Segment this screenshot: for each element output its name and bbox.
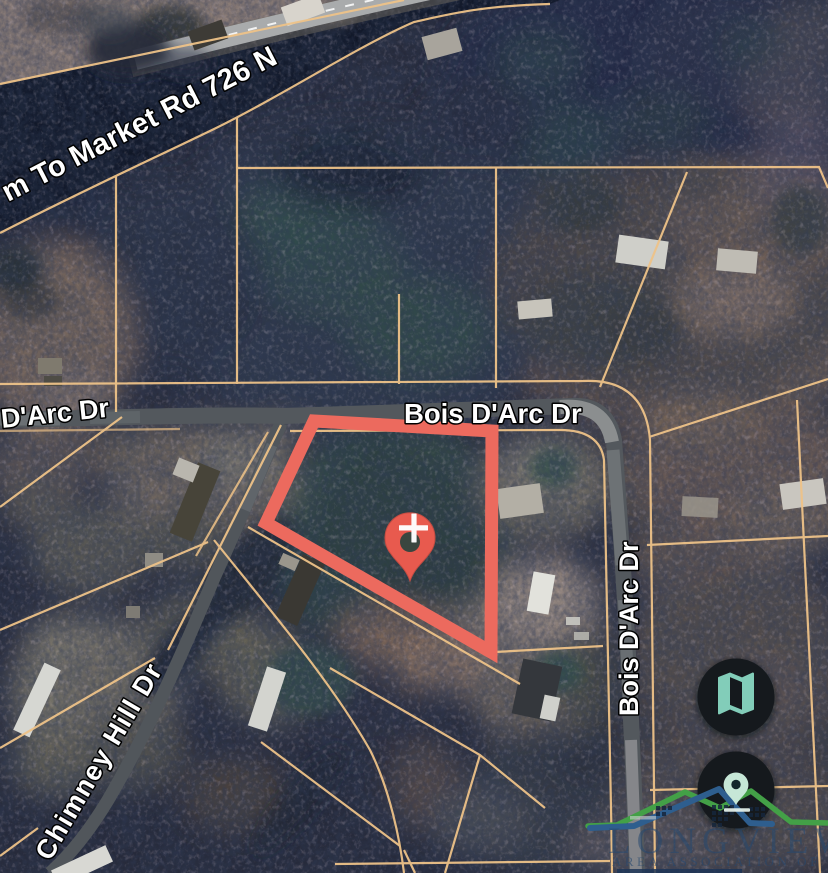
svg-text:Bois D'Arc Dr: Bois D'Arc Dr xyxy=(404,398,582,429)
svg-text:Bois D'Arc Dr: Bois D'Arc Dr xyxy=(614,541,644,716)
svg-text:AREA ASSOCIATION OF REALTORS: AREA ASSOCIATION OF REALTORS xyxy=(612,854,828,869)
